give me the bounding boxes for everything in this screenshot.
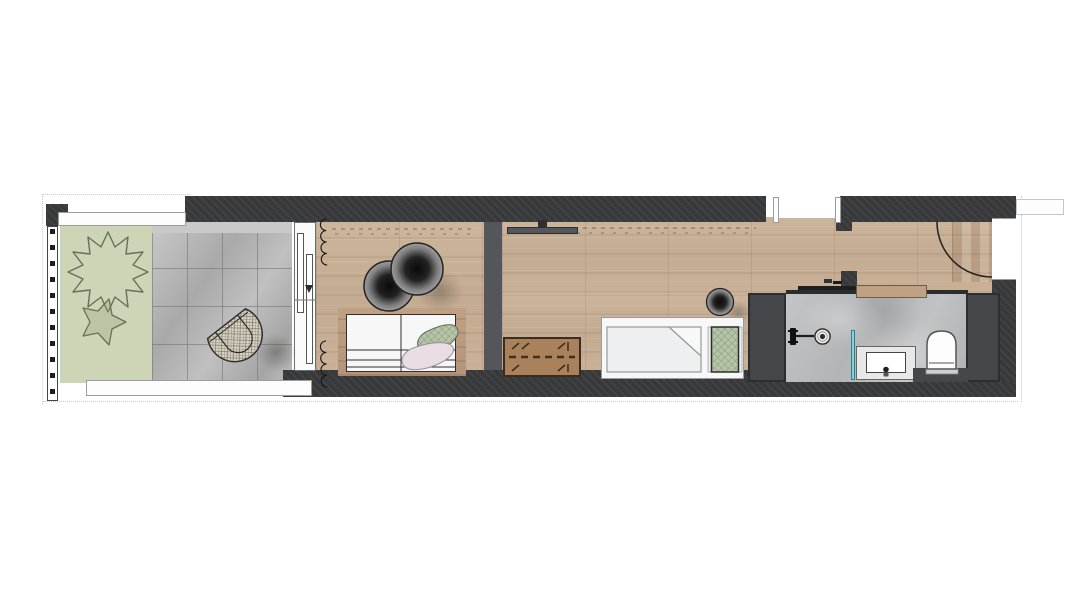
guide-line-top (42, 194, 190, 195)
guide-line-left (42, 196, 43, 404)
wall-top-left (185, 196, 766, 222)
daybed (601, 317, 744, 379)
balcony-lawn (60, 226, 152, 383)
neighbor-band (1016, 199, 1064, 215)
door-stop-tick (824, 279, 832, 283)
poufs-shadow (408, 262, 472, 320)
bathroom-sliding-door (856, 285, 927, 298)
passage-threshold (484, 222, 502, 372)
shaft-right (966, 293, 1000, 382)
parapet-bottom (86, 380, 312, 396)
double-bed (346, 314, 456, 372)
vanity-basin (866, 352, 906, 373)
floor-plan-canvas (0, 0, 1070, 602)
niche-jamb-right (835, 197, 841, 223)
wall-top-corner (992, 196, 1016, 218)
window-panel-1 (297, 233, 304, 313)
sliding-door-handle (833, 281, 842, 284)
toilet-ledge (913, 368, 968, 382)
niche-jamb-left (773, 197, 779, 223)
folding-table (503, 337, 581, 377)
guide-line-right (1021, 196, 1022, 402)
niche-opening (778, 196, 835, 218)
bedroom-rug-band (332, 227, 472, 236)
wall-bottom-right (748, 382, 1016, 397)
parapet-top (58, 212, 186, 226)
tv-mount (538, 220, 547, 228)
chair-shadow (248, 326, 304, 378)
wall-top-right (840, 196, 992, 222)
entry-door-leaf-zone (952, 222, 993, 282)
tv (507, 227, 578, 234)
guide-line-bottom (42, 401, 1018, 402)
railing-balusters (50, 229, 55, 399)
entry-door-opening (992, 218, 1016, 280)
shower-glass-screen (851, 330, 855, 380)
window-panel-2 (306, 254, 313, 364)
